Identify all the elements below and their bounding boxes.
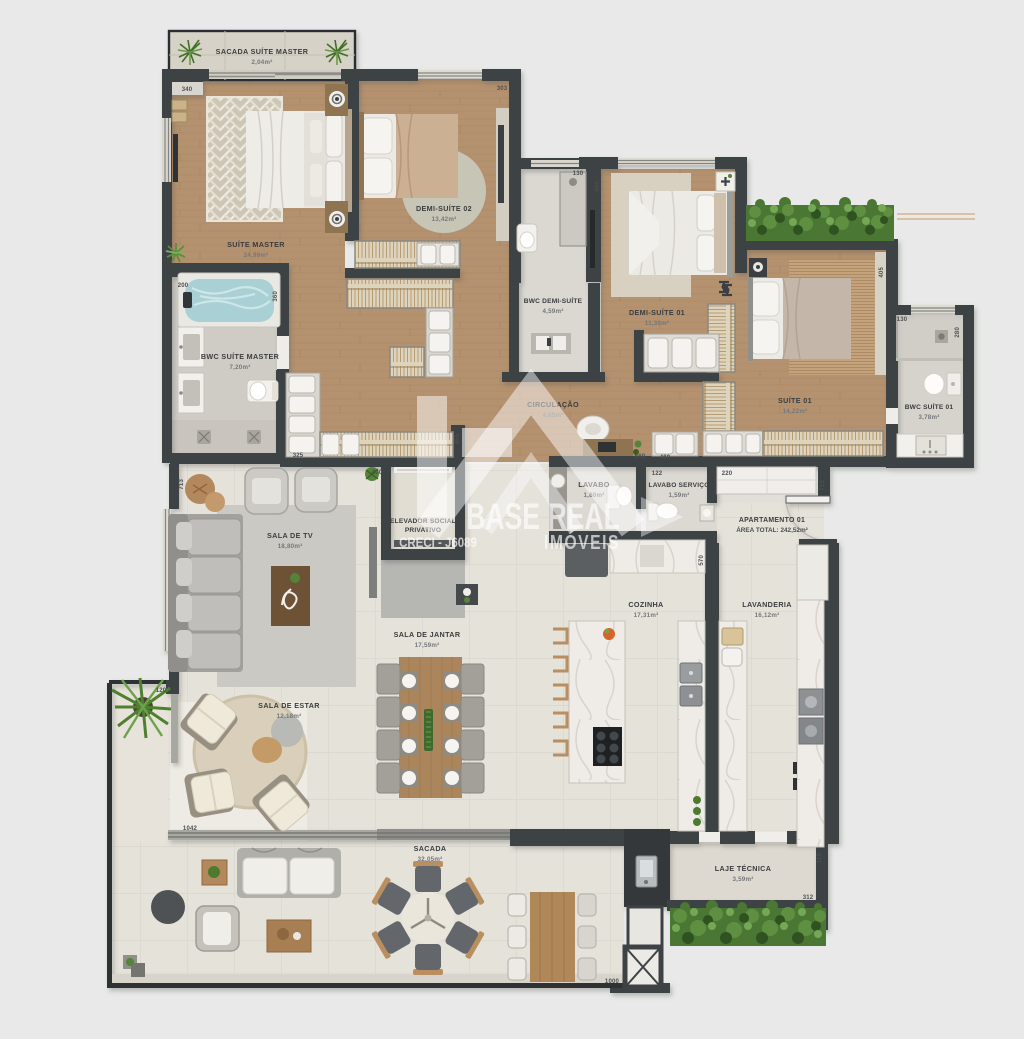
svg-text:SALA DE JANTAR: SALA DE JANTAR [394, 630, 461, 639]
svg-text:130: 130 [573, 171, 584, 177]
svg-text:LAJE TÉCNICA: LAJE TÉCNICA [715, 864, 772, 873]
svg-text:13,42m²: 13,42m² [432, 216, 457, 223]
svg-text:SACADA SUÍTE MASTER: SACADA SUÍTE MASTER [216, 47, 309, 56]
svg-text:405: 405 [879, 267, 885, 278]
svg-text:DEMI-SUÍTE 01: DEMI-SUÍTE 01 [629, 308, 685, 317]
svg-text:4,59m²: 4,59m² [542, 308, 563, 315]
svg-text:570: 570 [699, 555, 705, 566]
svg-text:11,30m²: 11,30m² [645, 320, 669, 327]
svg-text:17,31m²: 17,31m² [634, 612, 659, 619]
svg-text:18,80m²: 18,80m² [278, 543, 303, 550]
svg-text:ÁREA TOTAL: 242,52m²: ÁREA TOTAL: 242,52m² [736, 525, 808, 534]
svg-text:130: 130 [897, 317, 908, 323]
svg-text:3,78m²: 3,78m² [918, 414, 939, 421]
svg-text:CRECI - J6089: CRECI - J6089 [399, 534, 477, 550]
svg-text:32,05m²: 32,05m² [418, 856, 443, 863]
svg-text:660: 660 [635, 454, 646, 460]
svg-text:303: 303 [497, 86, 508, 92]
svg-text:715: 715 [820, 480, 826, 491]
svg-text:24,99m²: 24,99m² [244, 252, 269, 259]
svg-text:BWC DEMI-SUÍTE: BWC DEMI-SUÍTE [524, 296, 583, 305]
svg-text:12,18m²: 12,18m² [277, 713, 302, 720]
svg-text:7,20m²: 7,20m² [229, 364, 250, 371]
svg-text:455: 455 [455, 434, 461, 445]
svg-text:2,04m²: 2,04m² [251, 59, 272, 66]
svg-text:312: 312 [803, 895, 814, 901]
svg-text:DEMI-SUÍTE 02: DEMI-SUÍTE 02 [416, 204, 472, 213]
svg-text:BWC SUÍTE MASTER: BWC SUÍTE MASTER [201, 352, 280, 361]
svg-text:1,59m²: 1,59m² [668, 492, 689, 499]
svg-text:SACADA: SACADA [414, 844, 447, 853]
svg-text:713: 713 [179, 479, 185, 490]
svg-text:IMÓVEIS: IMÓVEIS [544, 530, 620, 553]
svg-text:APARTAMENTO 01: APARTAMENTO 01 [739, 517, 805, 524]
svg-text:17,59m²: 17,59m² [415, 642, 440, 649]
svg-text:280: 280 [955, 327, 961, 338]
svg-text:COZINHA: COZINHA [628, 600, 663, 609]
svg-text:400: 400 [595, 181, 601, 192]
svg-text:BWC SUÍTE 01: BWC SUÍTE 01 [905, 402, 954, 411]
svg-text:SUÍTE 01: SUÍTE 01 [778, 396, 812, 405]
svg-text:360: 360 [273, 291, 279, 302]
svg-text:16,12m²: 16,12m² [755, 612, 780, 619]
svg-text:460: 460 [660, 455, 671, 461]
svg-text:200: 200 [178, 283, 189, 289]
svg-text:400: 400 [372, 470, 383, 476]
svg-text:LAVANDERIA: LAVANDERIA [742, 600, 792, 609]
svg-text:115: 115 [817, 853, 823, 864]
svg-text:SALA DE ESTAR: SALA DE ESTAR [258, 701, 320, 710]
svg-text:325: 325 [293, 453, 304, 459]
svg-text:1042: 1042 [183, 826, 198, 832]
svg-text:LAVABO SERVIÇO: LAVABO SERVIÇO [648, 482, 709, 489]
svg-text:122: 122 [652, 471, 663, 477]
svg-text:120: 120 [156, 688, 167, 694]
svg-text:3,59m²: 3,59m² [732, 876, 753, 883]
svg-text:SUÍTE MASTER: SUÍTE MASTER [227, 240, 285, 249]
svg-text:1000: 1000 [605, 979, 620, 985]
svg-text:340: 340 [182, 87, 193, 93]
svg-text:SALA DE TV: SALA DE TV [267, 531, 313, 540]
svg-text:220: 220 [722, 471, 733, 477]
svg-text:14,22m²: 14,22m² [783, 408, 808, 415]
